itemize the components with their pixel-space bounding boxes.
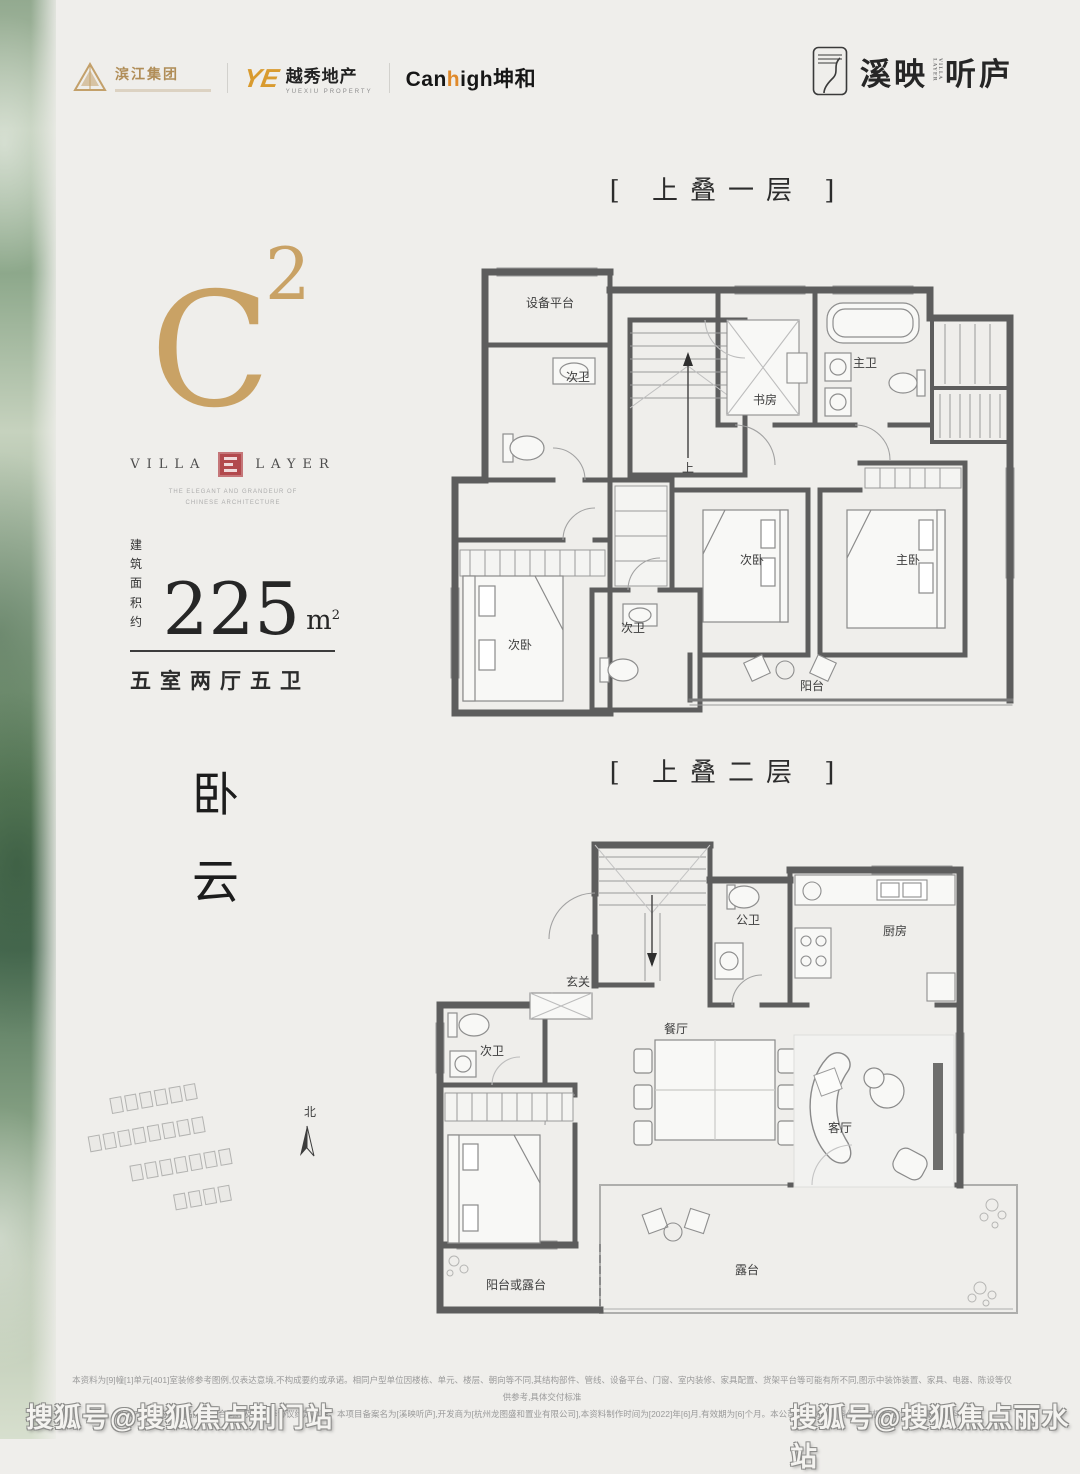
room-label-bath-b: 次卫 [621, 621, 645, 635]
floor1-labels: 设备平台 次卫 书房 主卫 次卧 次卫 次卧 主卧 阳台 上 [508, 295, 920, 693]
project-name-mini: VILLA LAYER [931, 58, 942, 84]
yuexiu-name: 越秀地产 [286, 62, 373, 87]
room-label-equipment-platform: 设备平台 [526, 295, 574, 310]
area-block: 建 筑 面积约 225 m2 五室两厅五卫 [130, 536, 340, 695]
rooms-line: 五室两厅五卫 [130, 665, 340, 695]
floor1-title: [ 上叠一层 ] [568, 170, 888, 207]
canhigh-logo: Canhigh坤和 [406, 63, 537, 93]
watermark-right: 搜狐号@搜狐焦点丽水站 [790, 1396, 1080, 1474]
area-prefix: 建 筑 面积约 [130, 536, 157, 642]
binjiang-tagline-bar [115, 89, 211, 92]
north-arrow-icon [300, 1126, 307, 1156]
watercolor-strip [0, 0, 56, 1439]
yuexiu-logo: YE 越秀地产 YUEXIU PROPERTY [244, 62, 373, 95]
unit-code: C2 [150, 272, 317, 430]
room-label-master-bath: 主卫 [853, 356, 877, 370]
canhigh-name: Canhigh坤和 [406, 63, 537, 93]
project-name: 溪映 VILLA LAYER 听庐 [860, 49, 1013, 94]
room-label-bedroom-b: 次卧 [740, 553, 764, 567]
floor2-title: [ 上叠二层 ] [568, 752, 888, 789]
room-label-balcony: 阳台 [800, 678, 824, 693]
room-label-master-bedroom: 主卧 [896, 553, 920, 567]
floor1-plan: 设备平台 次卫 书房 主卫 次卧 次卫 次卧 主卧 阳台 上 [435, 258, 1020, 720]
room-label-study: 书房 [753, 392, 777, 407]
site-plan: 北 [70, 1068, 350, 1228]
project-brand: 溪映 VILLA LAYER 听庐 [812, 46, 1013, 96]
room-label-bath-a: 次卫 [566, 370, 590, 384]
north-label: 北 [304, 1105, 316, 1119]
binjiang-logo: 滨江集团 [72, 62, 211, 94]
pyramid-icon [72, 62, 108, 94]
red-seal-icon [218, 452, 243, 477]
villa-text: VILLA [130, 457, 206, 472]
villa-layer-row: VILLA LAYER [108, 452, 358, 477]
area-value: 225 [163, 577, 300, 642]
floor2-bedroom-furniture [432, 833, 1022, 1325]
series-subtitle: THE ELEGANT AND GRANDEUR OF CHINESE ARCH… [108, 487, 358, 509]
poem-vertical: 卧 云 [192, 772, 239, 906]
logo-divider [227, 63, 228, 93]
yuexiu-mark-icon: YE [242, 65, 281, 91]
watermark-left: 搜狐号@搜狐焦点荆门站 [26, 1396, 333, 1435]
floor1-balcony-furniture [744, 655, 837, 682]
area-unit: m2 [306, 605, 340, 642]
room-label-bedroom-a: 次卧 [508, 638, 532, 652]
layer-text: LAYER [255, 457, 335, 472]
developer-logos: 滨江集团 YE 越秀地产 YUEXIU PROPERTY Canhigh坤和 [72, 50, 536, 106]
binjiang-name: 滨江集团 [115, 64, 211, 84]
yuexiu-sub: YUEXIU PROPERTY [286, 89, 373, 95]
stair-up-label: 上 [682, 461, 694, 475]
stream-icon [812, 46, 848, 96]
logo-divider [389, 63, 390, 93]
